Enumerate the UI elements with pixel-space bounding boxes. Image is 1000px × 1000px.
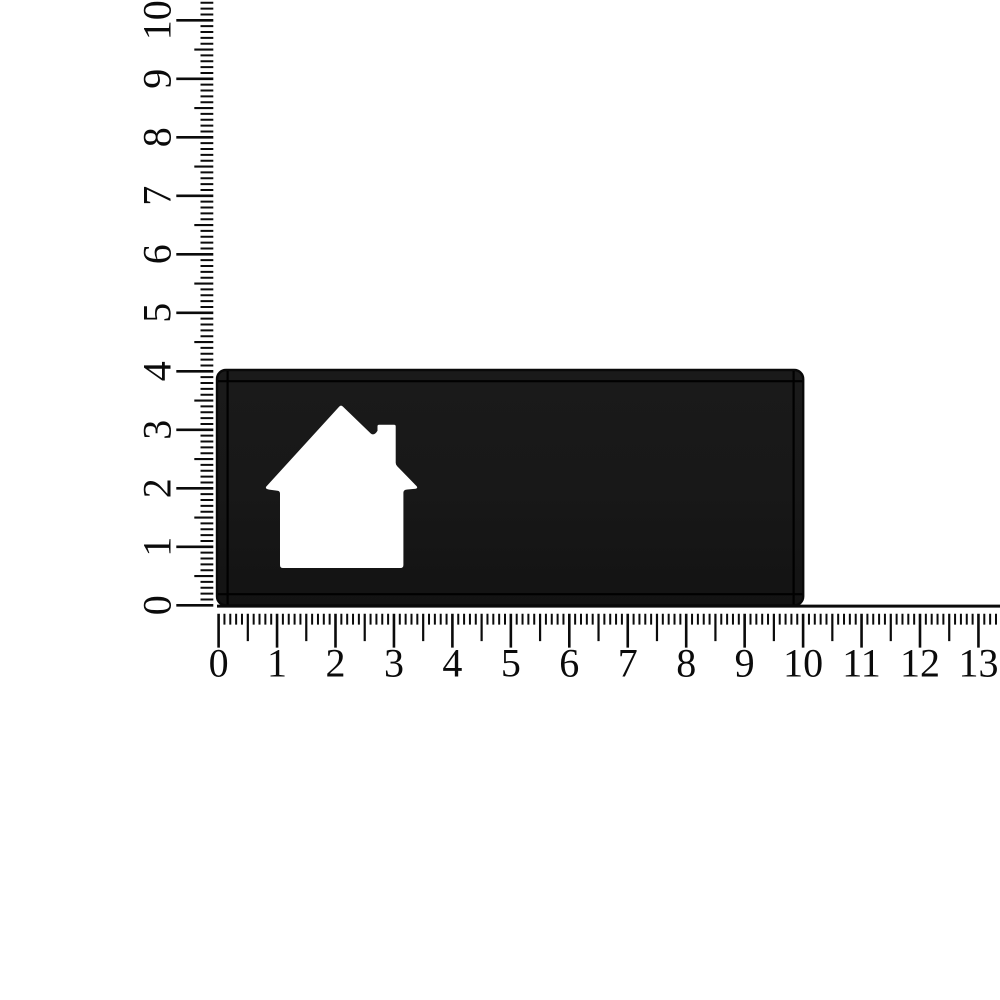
svg-text:6: 6	[135, 244, 180, 264]
svg-text:10: 10	[783, 641, 823, 686]
svg-text:8: 8	[676, 641, 696, 686]
svg-text:5: 5	[135, 303, 180, 323]
svg-text:0: 0	[135, 595, 180, 615]
svg-text:11: 11	[842, 641, 881, 686]
svg-text:1: 1	[267, 641, 287, 686]
svg-text:4: 4	[442, 641, 462, 686]
svg-text:13: 13	[958, 641, 998, 686]
svg-text:9: 9	[135, 69, 180, 89]
svg-text:12: 12	[900, 641, 940, 686]
svg-text:2: 2	[135, 478, 180, 498]
svg-text:5: 5	[501, 641, 521, 686]
svg-text:3: 3	[384, 641, 404, 686]
svg-text:7: 7	[618, 641, 638, 686]
svg-text:8: 8	[135, 127, 180, 147]
svg-text:0: 0	[209, 641, 229, 686]
svg-text:6: 6	[559, 641, 579, 686]
svg-text:10: 10	[135, 0, 180, 40]
svg-text:1: 1	[135, 537, 180, 557]
svg-text:3: 3	[135, 420, 180, 440]
svg-text:9: 9	[735, 641, 755, 686]
svg-text:4: 4	[135, 361, 180, 381]
svg-text:7: 7	[135, 186, 180, 206]
svg-text:2: 2	[326, 641, 346, 686]
